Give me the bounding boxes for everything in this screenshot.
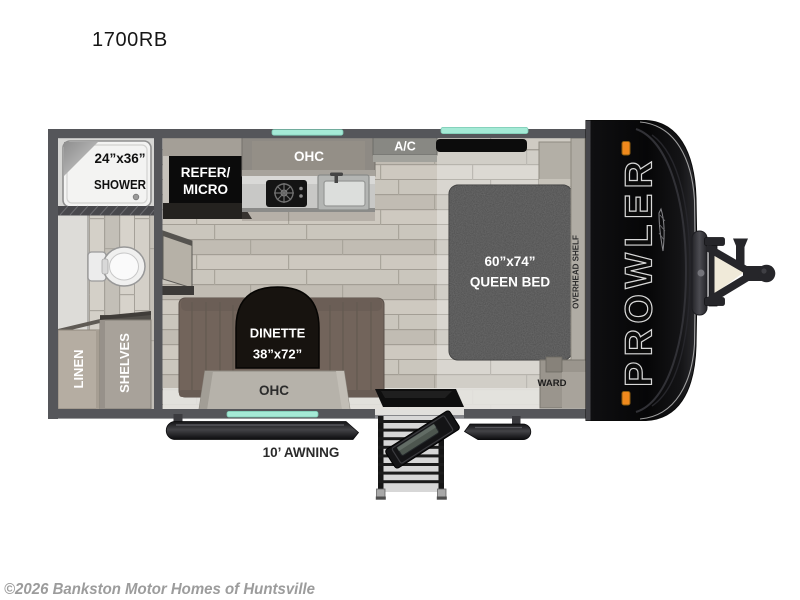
svg-text:MICRO: MICRO — [183, 182, 228, 197]
svg-text:A/C: A/C — [394, 140, 416, 154]
svg-text:WARD: WARD — [537, 378, 566, 389]
svg-text:LINEN: LINEN — [71, 350, 86, 389]
svg-text:DINETTE: DINETTE — [250, 326, 306, 341]
svg-text:QUEEN BED: QUEEN BED — [470, 275, 551, 290]
svg-text:SHOWER: SHOWER — [94, 177, 147, 192]
svg-text:©2026 Bankston Motor Homes of: ©2026 Bankston Motor Homes of Huntsville — [4, 581, 315, 598]
svg-text:38”x72”: 38”x72” — [253, 347, 302, 362]
svg-text:1700RB: 1700RB — [92, 29, 168, 51]
svg-text:PROWLER: PROWLER — [619, 161, 661, 387]
svg-text:REFER/: REFER/ — [181, 165, 231, 180]
svg-text:OVERHEAD SHELF: OVERHEAD SHELF — [572, 235, 581, 309]
svg-text:24”x36”: 24”x36” — [94, 151, 145, 166]
svg-text:SHELVES: SHELVES — [117, 333, 132, 393]
svg-text:10’ AWNING: 10’ AWNING — [263, 445, 340, 460]
svg-text:OHC: OHC — [259, 383, 289, 398]
svg-text:60”x74”: 60”x74” — [484, 254, 535, 269]
svg-text:OHC: OHC — [294, 149, 324, 164]
